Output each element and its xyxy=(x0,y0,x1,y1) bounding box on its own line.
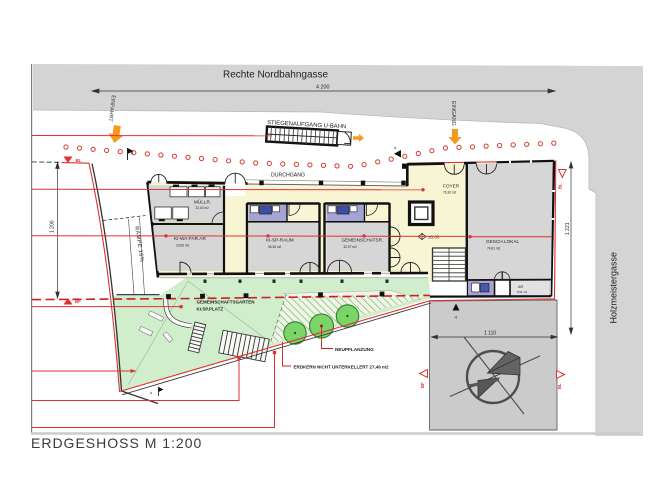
svg-text:EINGANG: EINGANG xyxy=(450,101,456,126)
svg-text:BL: BL xyxy=(557,383,562,389)
svg-text:36,36 m2: 36,36 m2 xyxy=(268,245,282,249)
svg-text:NEUPFLANZUNG: NEUPFLANZUNG xyxy=(335,347,374,352)
svg-text:22,40 m2: 22,40 m2 xyxy=(196,206,210,210)
svg-text:23,66 m2: 23,66 m2 xyxy=(176,244,190,248)
svg-text:KI-SP-RAUM: KI-SP-RAUM xyxy=(266,238,294,243)
svg-text:8,51 m2: 8,51 m2 xyxy=(517,290,528,294)
svg-text:BL: BL xyxy=(558,183,563,189)
svg-text:MÜLLR.: MÜLLR. xyxy=(194,199,211,205)
svg-text:GEMEINSCHAFTSGARTEN: GEMEINSCHAFTSGARTEN xyxy=(197,300,255,305)
svg-text:32,57 m2: 32,57 m2 xyxy=(344,245,358,249)
svg-text:KI-WA-FAR.AR: KI-WA-FAR.AR xyxy=(174,236,206,241)
svg-text:GEMEINSCHATSR.: GEMEINSCHATSR. xyxy=(342,238,384,243)
svg-text:KI.SP.PLATZ: KI.SP.PLATZ xyxy=(197,307,224,312)
svg-text:1 200: 1 200 xyxy=(50,220,56,233)
svg-text:ERDKERN NICHT UNTERKELLERT 27,: ERDKERN NICHT UNTERKELLERT 27,49 m2 xyxy=(294,364,390,369)
svg-text:1 221: 1 221 xyxy=(565,222,571,235)
svg-text:BF: BF xyxy=(420,382,425,388)
svg-text:1 110: 1 110 xyxy=(484,331,496,337)
svg-text:Rechte Nordbahngasse: Rechte Nordbahngasse xyxy=(223,70,329,81)
svg-text:BL: BL xyxy=(76,158,82,163)
svg-text:DURCHGANG: DURCHGANG xyxy=(271,172,305,178)
svg-text:GESCH.LOKAL: GESCH.LOKAL xyxy=(486,239,519,244)
svg-text:BF: BF xyxy=(75,299,81,304)
svg-text:FOYER: FOYER xyxy=(443,184,460,189)
svg-text:4 200: 4 200 xyxy=(316,85,330,91)
svg-text:±0,00: ±0,00 xyxy=(428,235,440,240)
svg-text:74,81 m2: 74,81 m2 xyxy=(487,247,501,251)
svg-text:76,36 m2: 76,36 m2 xyxy=(443,191,457,195)
svg-text:ERDGESHOSS M 1:200: ERDGESHOSS M 1:200 xyxy=(31,435,202,451)
svg-text:⌀: ⌀ xyxy=(150,391,152,395)
svg-text:AR: AR xyxy=(518,285,524,289)
svg-text:Holzmeistergasse: Holzmeistergasse xyxy=(609,252,619,324)
